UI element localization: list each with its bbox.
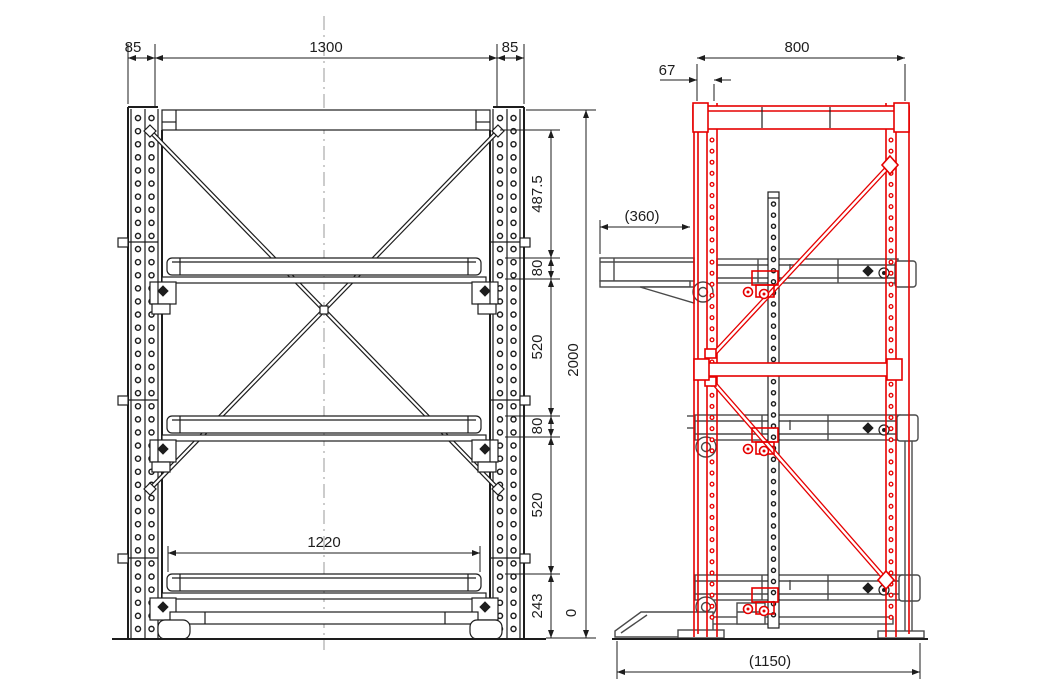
side-arm-middle bbox=[687, 415, 918, 457]
dim-top-right: 85 bbox=[502, 39, 519, 56]
dim-top-left: 85 bbox=[125, 39, 142, 56]
side-top-beam bbox=[693, 106, 909, 129]
dim-chain-3: 80 bbox=[529, 418, 546, 435]
dim-datum: 0 bbox=[563, 609, 580, 617]
dim-side-width: 800 bbox=[784, 39, 809, 56]
dim-side-overhang: (360) bbox=[624, 208, 659, 225]
dim-chain-2: 520 bbox=[529, 334, 546, 359]
side-cross-beam bbox=[701, 363, 901, 376]
dim-chain-4: 520 bbox=[529, 492, 546, 517]
dim-side-offset: 67 bbox=[659, 62, 676, 79]
side-red-frame bbox=[693, 103, 909, 637]
dim-chain-0: 487.5 bbox=[529, 175, 546, 213]
dim-clear-width: 1220 bbox=[307, 534, 340, 551]
dim-chain-1: 80 bbox=[529, 260, 546, 277]
dim-top-center: 1300 bbox=[309, 39, 342, 56]
technical-drawing: 85 1300 85 1220 487.5 80 520 80 bbox=[0, 0, 1048, 695]
dim-side-depth: (1150) bbox=[749, 653, 791, 670]
drawing-sheet: 85 1300 85 1220 487.5 80 520 80 bbox=[0, 0, 1048, 695]
side-view: 800 67 (360) (1150) bbox=[600, 39, 928, 679]
front-view: 85 1300 85 1220 487.5 80 520 80 bbox=[112, 16, 596, 650]
dim-overall-height: 2000 bbox=[565, 343, 582, 376]
brace-center-plate bbox=[320, 306, 328, 314]
side-center-post bbox=[768, 192, 779, 628]
front-top-beam bbox=[162, 110, 490, 130]
dim-chain-5: 243 bbox=[529, 593, 546, 618]
